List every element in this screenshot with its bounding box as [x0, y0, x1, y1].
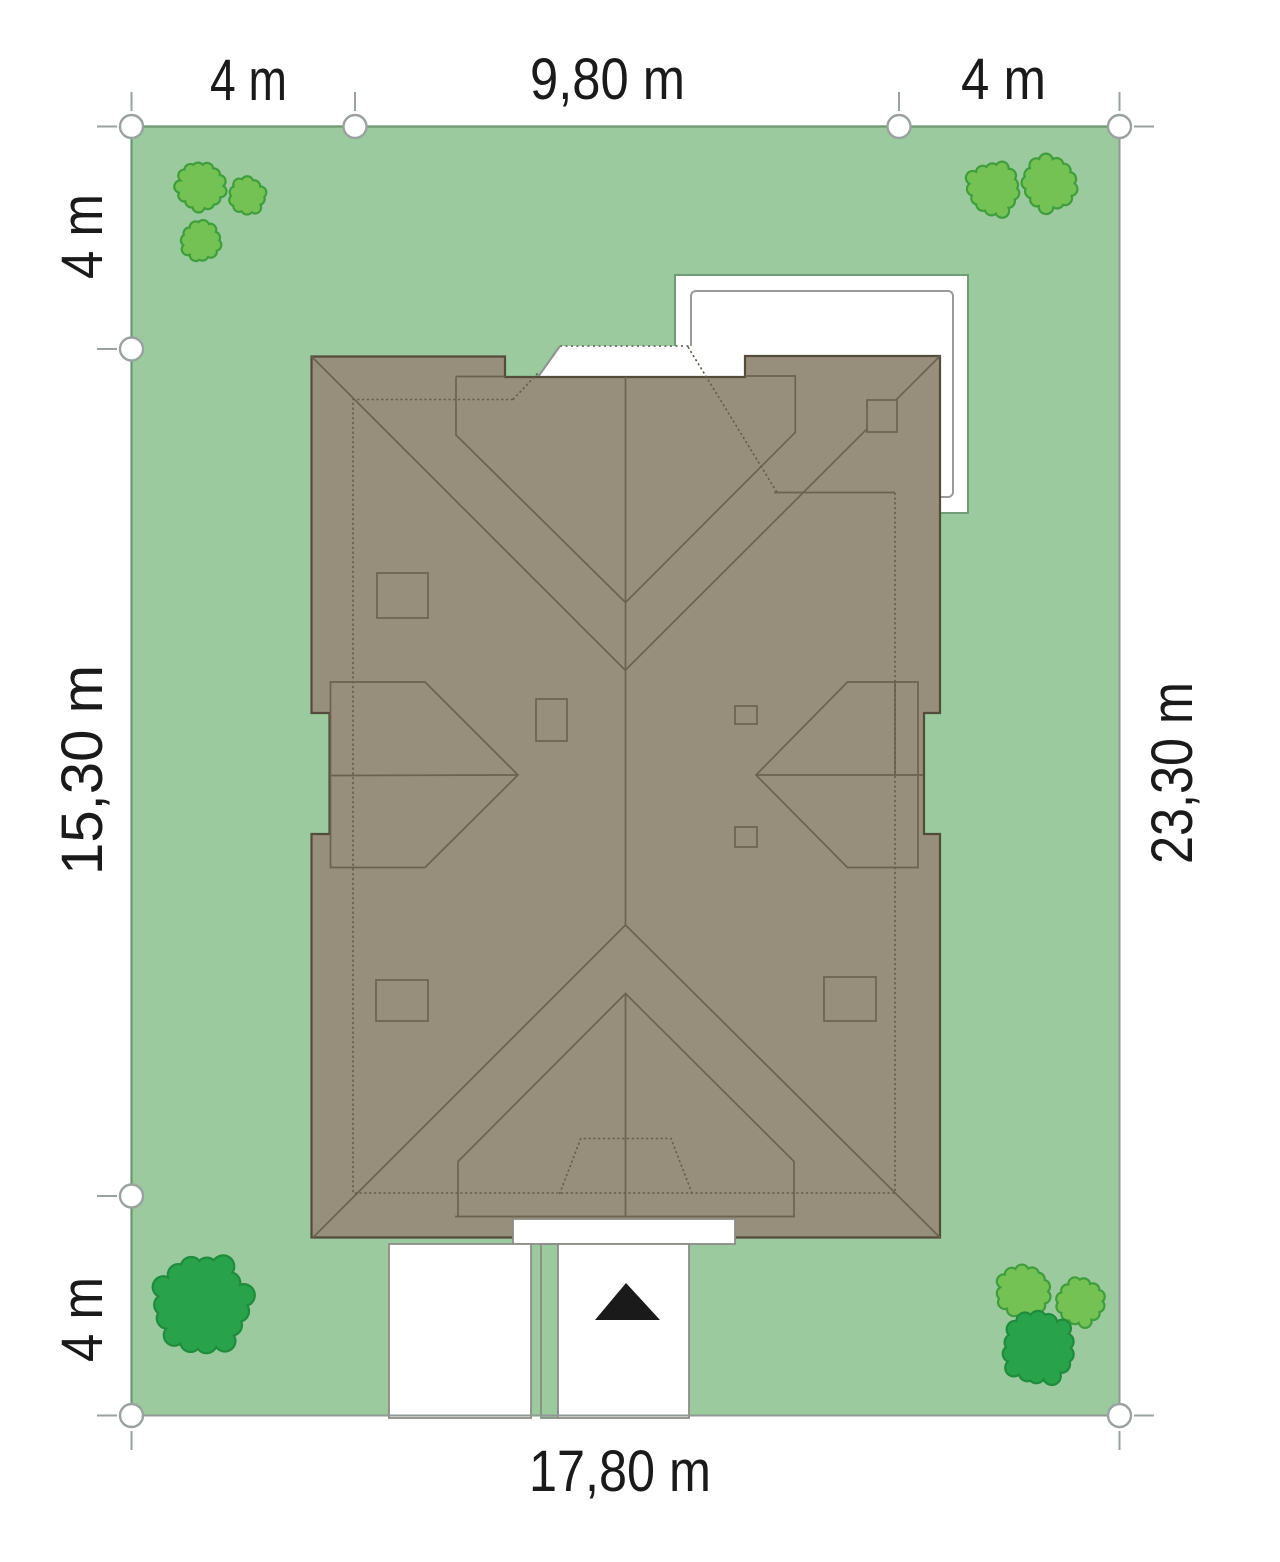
svg-text:9,80 m: 9,80 m — [530, 47, 685, 112]
svg-text:4 m: 4 m — [961, 47, 1046, 112]
svg-text:15,30 m: 15,30 m — [50, 665, 115, 875]
svg-text:4 m: 4 m — [210, 48, 287, 113]
svg-text:4 m: 4 m — [50, 1277, 115, 1362]
svg-text:4 m: 4 m — [50, 194, 115, 279]
svg-text:17,80 m: 17,80 m — [529, 1439, 711, 1504]
svg-text:23,30 m: 23,30 m — [1140, 682, 1205, 864]
